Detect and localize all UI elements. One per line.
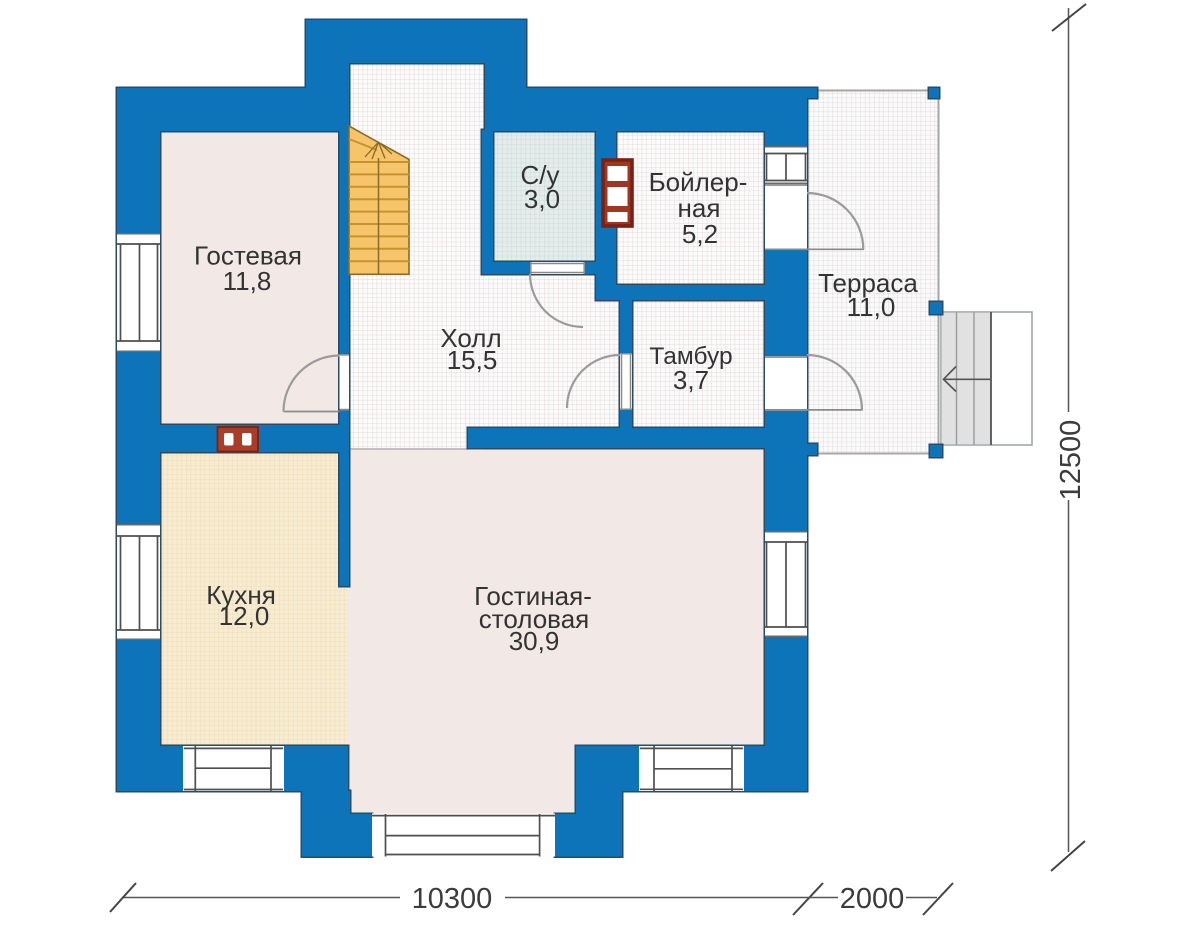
svg-text:11,0: 11,0 [847, 292, 896, 322]
svg-text:15,5: 15,5 [447, 345, 498, 375]
svg-text:3,0: 3,0 [524, 184, 560, 214]
svg-text:10300: 10300 [412, 883, 493, 915]
svg-text:30,9: 30,9 [509, 626, 560, 656]
svg-text:5,2: 5,2 [682, 219, 718, 249]
svg-text:12500: 12500 [1055, 420, 1087, 501]
svg-text:12,0: 12,0 [219, 601, 270, 631]
svg-text:2000: 2000 [840, 883, 905, 915]
svg-text:11,8: 11,8 [223, 266, 272, 296]
svg-text:3,7: 3,7 [673, 365, 709, 395]
